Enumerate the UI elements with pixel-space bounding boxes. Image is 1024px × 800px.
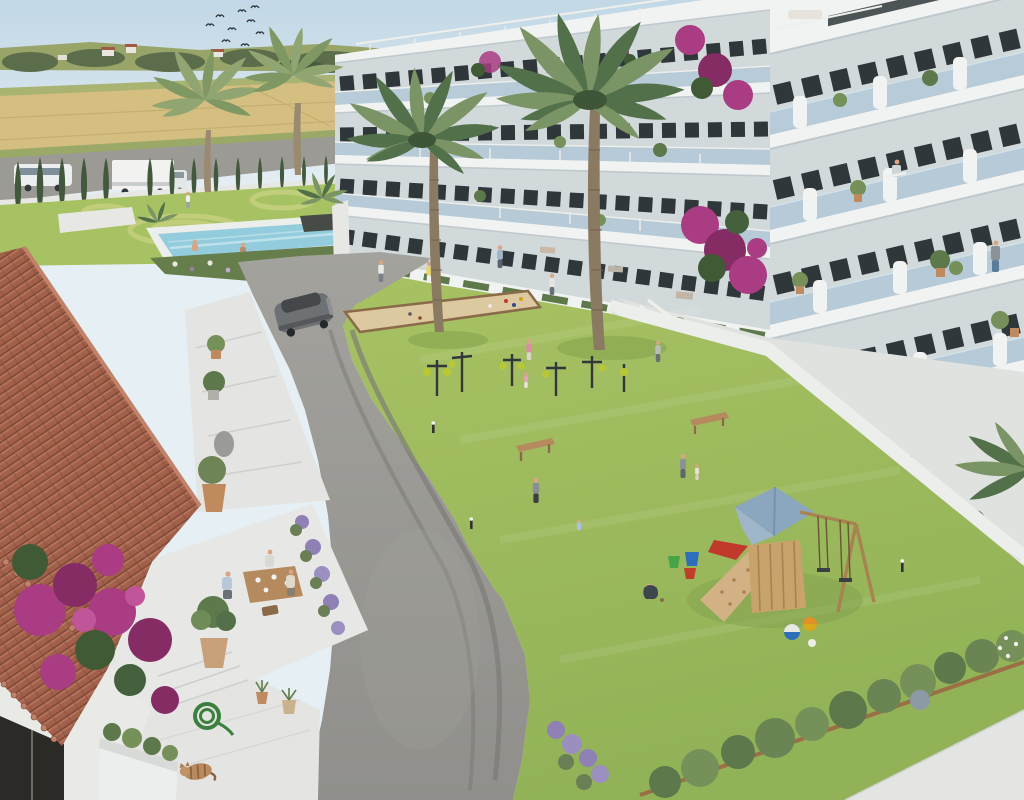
render-stage <box>0 0 1024 800</box>
swimmer <box>192 240 198 251</box>
scene-svg <box>0 0 1024 800</box>
tower-body <box>748 540 806 613</box>
